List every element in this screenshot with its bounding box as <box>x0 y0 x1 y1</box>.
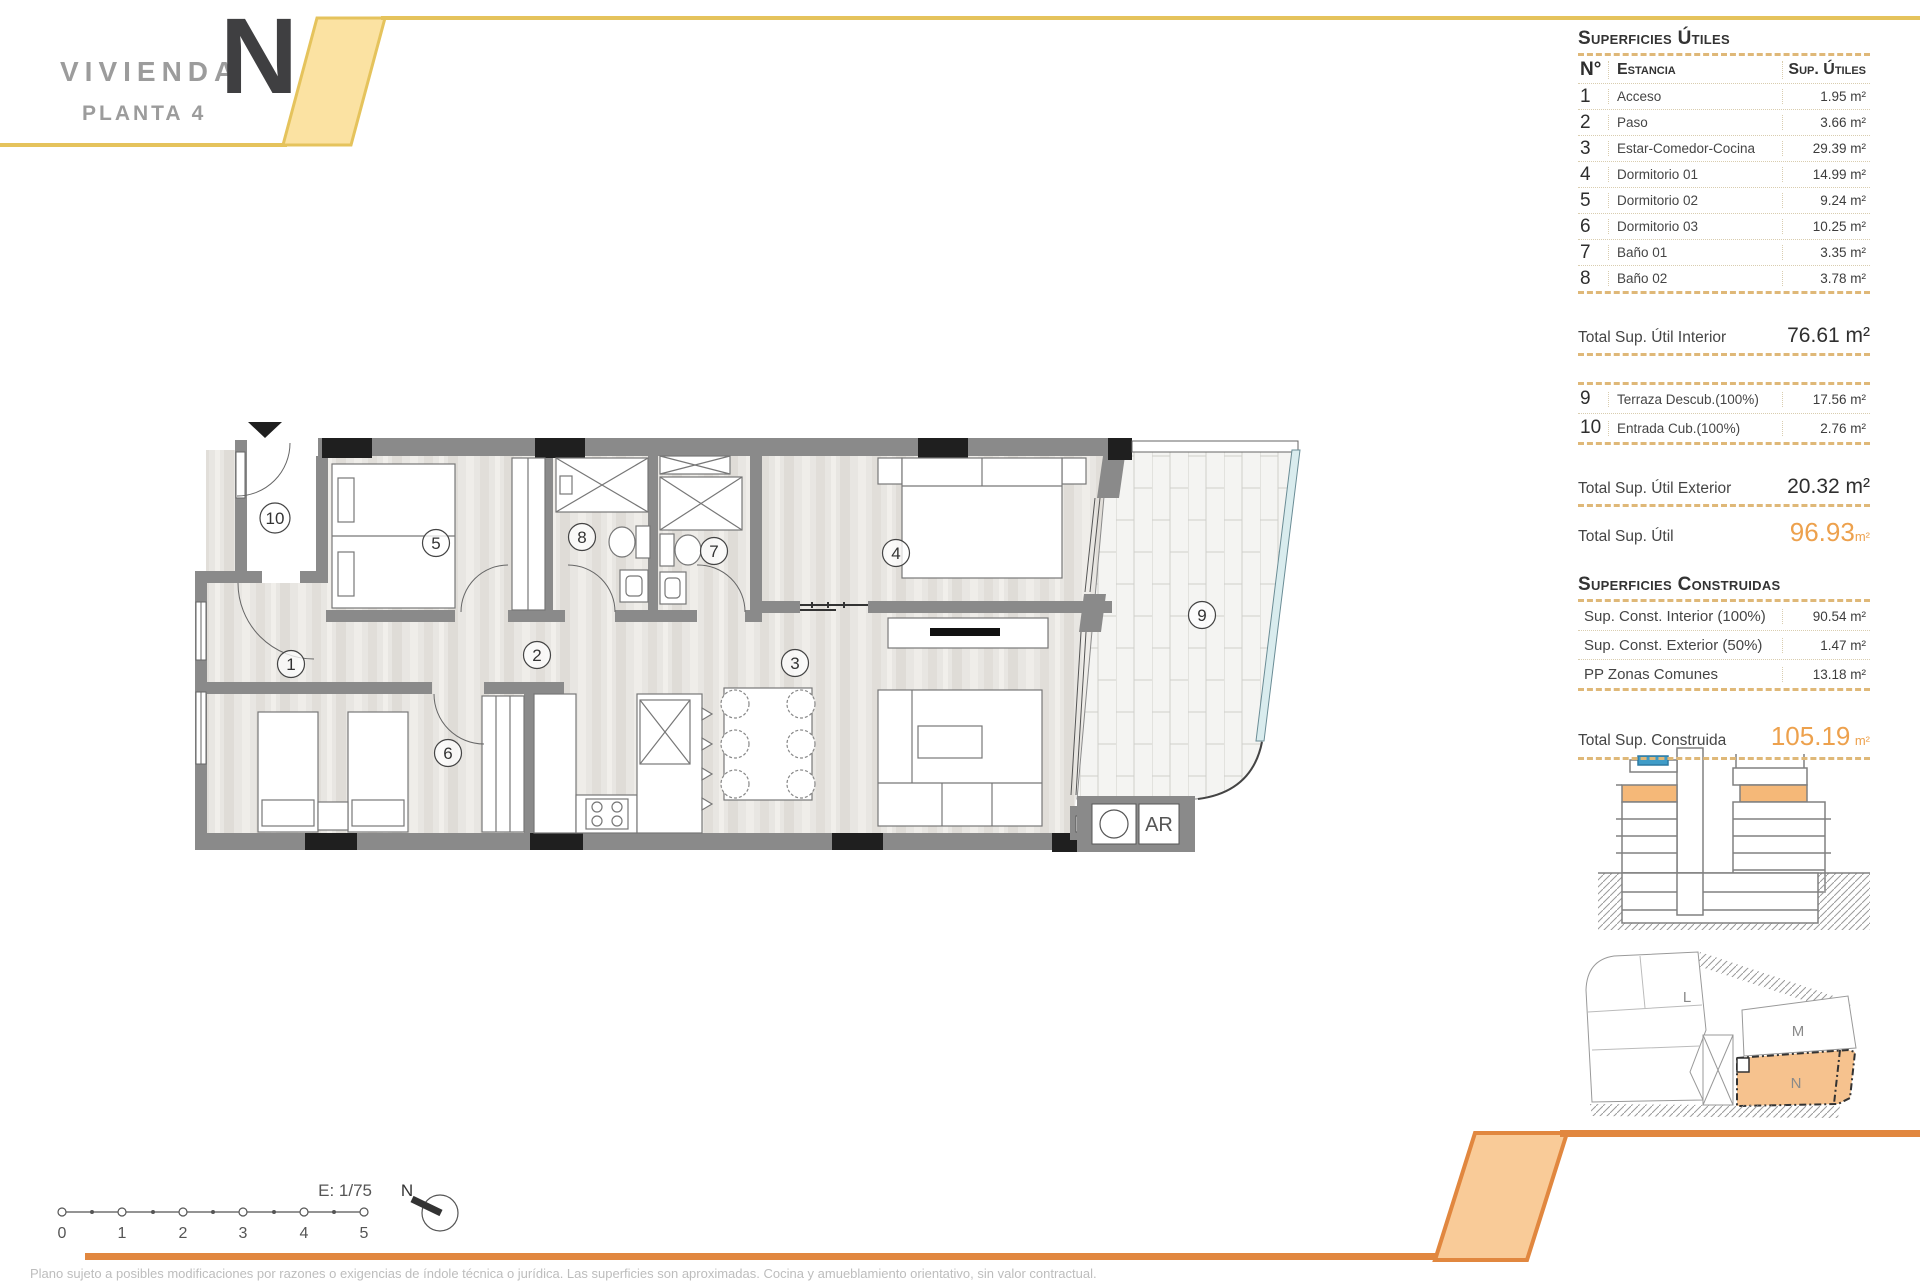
construidas-table: Sup. Const. Interior (100%) 90.54 m² Sup… <box>1578 599 1870 691</box>
exterior-table: 9 Terraza Descub.(100%) 17.56 m² 10 Entr… <box>1578 382 1870 445</box>
scale-label: E: 1/75 <box>318 1181 372 1200</box>
table-row: 10 Entrada Cub.(100%) 2.76 m² <box>1578 413 1870 442</box>
utility-label: AR <box>1145 814 1173 836</box>
terrace-floor <box>1077 447 1298 799</box>
floor-plan: AR 1 2 <box>195 422 1300 852</box>
total-construida: Total Sup. Construida 105.19 m² <box>1578 721 1870 752</box>
col-num: N° <box>1578 59 1608 81</box>
highlighted-floor-right <box>1740 785 1807 802</box>
entrance-arrow-icon <box>248 422 282 438</box>
room-number-7: 7 <box>701 538 728 565</box>
site-plan-diagram: L M N <box>1586 952 1856 1118</box>
surfaces-utiles-table: N° Estancia Sup. Útiles 1 Acceso 1.95 m²… <box>1578 53 1870 294</box>
scale-tick-labels: 0 1 2 3 4 5 <box>58 1225 369 1242</box>
table-row: 1 Acceso 1.95 m² <box>1578 83 1870 109</box>
room-number-5: 5 <box>423 530 450 557</box>
svg-text:10: 10 <box>266 509 285 528</box>
table-row: 9 Terraza Descub.(100%) 17.56 m² <box>1578 385 1870 413</box>
table-row: 8 Baño 02 3.78 m² <box>1578 265 1870 291</box>
room-number-1: 1 <box>278 651 305 678</box>
svg-text:6: 6 <box>443 744 452 763</box>
table-row: Sup. Const. Exterior (50%) 1.47 m² <box>1578 630 1870 659</box>
table-row: PP Zonas Comunes 13.18 m² <box>1578 659 1870 688</box>
room-number-10: 10 <box>260 503 290 533</box>
surface-data-panel: Superficies Útiles N° Estancia Sup. Útil… <box>1578 28 1870 760</box>
north-label: N <box>401 1181 413 1200</box>
table-header: N° Estancia Sup. Útiles <box>1578 56 1870 83</box>
svg-text:3: 3 <box>239 1225 248 1242</box>
site-label-n: N <box>1791 1075 1802 1092</box>
svg-text:4: 4 <box>891 544 900 563</box>
col-area: Sup. Útiles <box>1782 61 1870 79</box>
surfaces-construidas-title: Superficies Construidas <box>1578 574 1870 596</box>
svg-text:2: 2 <box>532 646 541 665</box>
table-row: 5 Dormitorio 02 9.24 m² <box>1578 187 1870 213</box>
svg-text:9: 9 <box>1197 606 1206 625</box>
page-subtitle: PLANTA 4 <box>82 102 206 126</box>
site-hatch-bottom <box>1590 1104 1840 1118</box>
room-number-3: 3 <box>782 650 809 677</box>
table-row: 4 Dormitorio 01 14.99 m² <box>1578 161 1870 187</box>
svg-text:4: 4 <box>300 1225 309 1242</box>
banner-parallelogram <box>283 18 385 145</box>
room-number-8: 8 <box>569 524 596 551</box>
building-section-diagram <box>1598 748 1870 930</box>
page-title: VIVIENDA <box>60 56 240 88</box>
unit-letter: N <box>220 2 298 110</box>
footer-disclaimer: Plano sujeto a posibles modificaciones p… <box>30 1266 1230 1281</box>
banner-parallelogram <box>1435 1133 1567 1260</box>
room-number-2: 2 <box>524 642 551 669</box>
north-arrow-icon: N <box>401 1181 458 1231</box>
table-row: 7 Baño 01 3.35 m² <box>1578 239 1870 265</box>
room-number-9: 9 <box>1189 602 1216 629</box>
svg-text:8: 8 <box>577 528 586 547</box>
svg-text:1: 1 <box>286 655 295 674</box>
total-interior: Total Sup. Útil Interior 76.61 m² <box>1578 324 1870 348</box>
surfaces-utiles-title: Superficies Útiles <box>1578 28 1870 50</box>
svg-text:7: 7 <box>709 542 718 561</box>
svg-text:1: 1 <box>118 1225 127 1242</box>
table-row: Sup. Const. Interior (100%) 90.54 m² <box>1578 602 1870 630</box>
svg-text:0: 0 <box>58 1225 67 1242</box>
table-row: 6 Dormitorio 03 10.25 m² <box>1578 213 1870 239</box>
total-exterior: Total Sup. Útil Exterior 20.32 m² <box>1578 475 1870 499</box>
washing-machine-icon <box>1100 810 1128 838</box>
table-row: 3 Estar-Comedor-Cocina 29.39 m² <box>1578 135 1870 161</box>
svg-text:5: 5 <box>431 534 440 553</box>
site-label-l: L <box>1683 989 1691 1006</box>
svg-text:3: 3 <box>790 654 799 673</box>
col-room: Estancia <box>1608 61 1782 79</box>
total-util: Total Sup. Útil 96.93m² <box>1578 517 1870 548</box>
utility-area: AR <box>1070 796 1195 852</box>
block-L-outline <box>1586 952 1706 1102</box>
scale-bar: E: 1/75 0 1 2 3 4 5 <box>58 1181 372 1242</box>
terrace-parapet <box>1132 441 1298 452</box>
room-number-4: 4 <box>883 540 910 567</box>
site-label-m: M <box>1792 1023 1805 1040</box>
room-number-6: 6 <box>435 740 462 767</box>
table-row: 2 Paso 3.66 m² <box>1578 109 1870 135</box>
svg-text:5: 5 <box>360 1225 369 1242</box>
highlighted-floor-left <box>1622 785 1677 802</box>
svg-text:2: 2 <box>179 1225 188 1242</box>
